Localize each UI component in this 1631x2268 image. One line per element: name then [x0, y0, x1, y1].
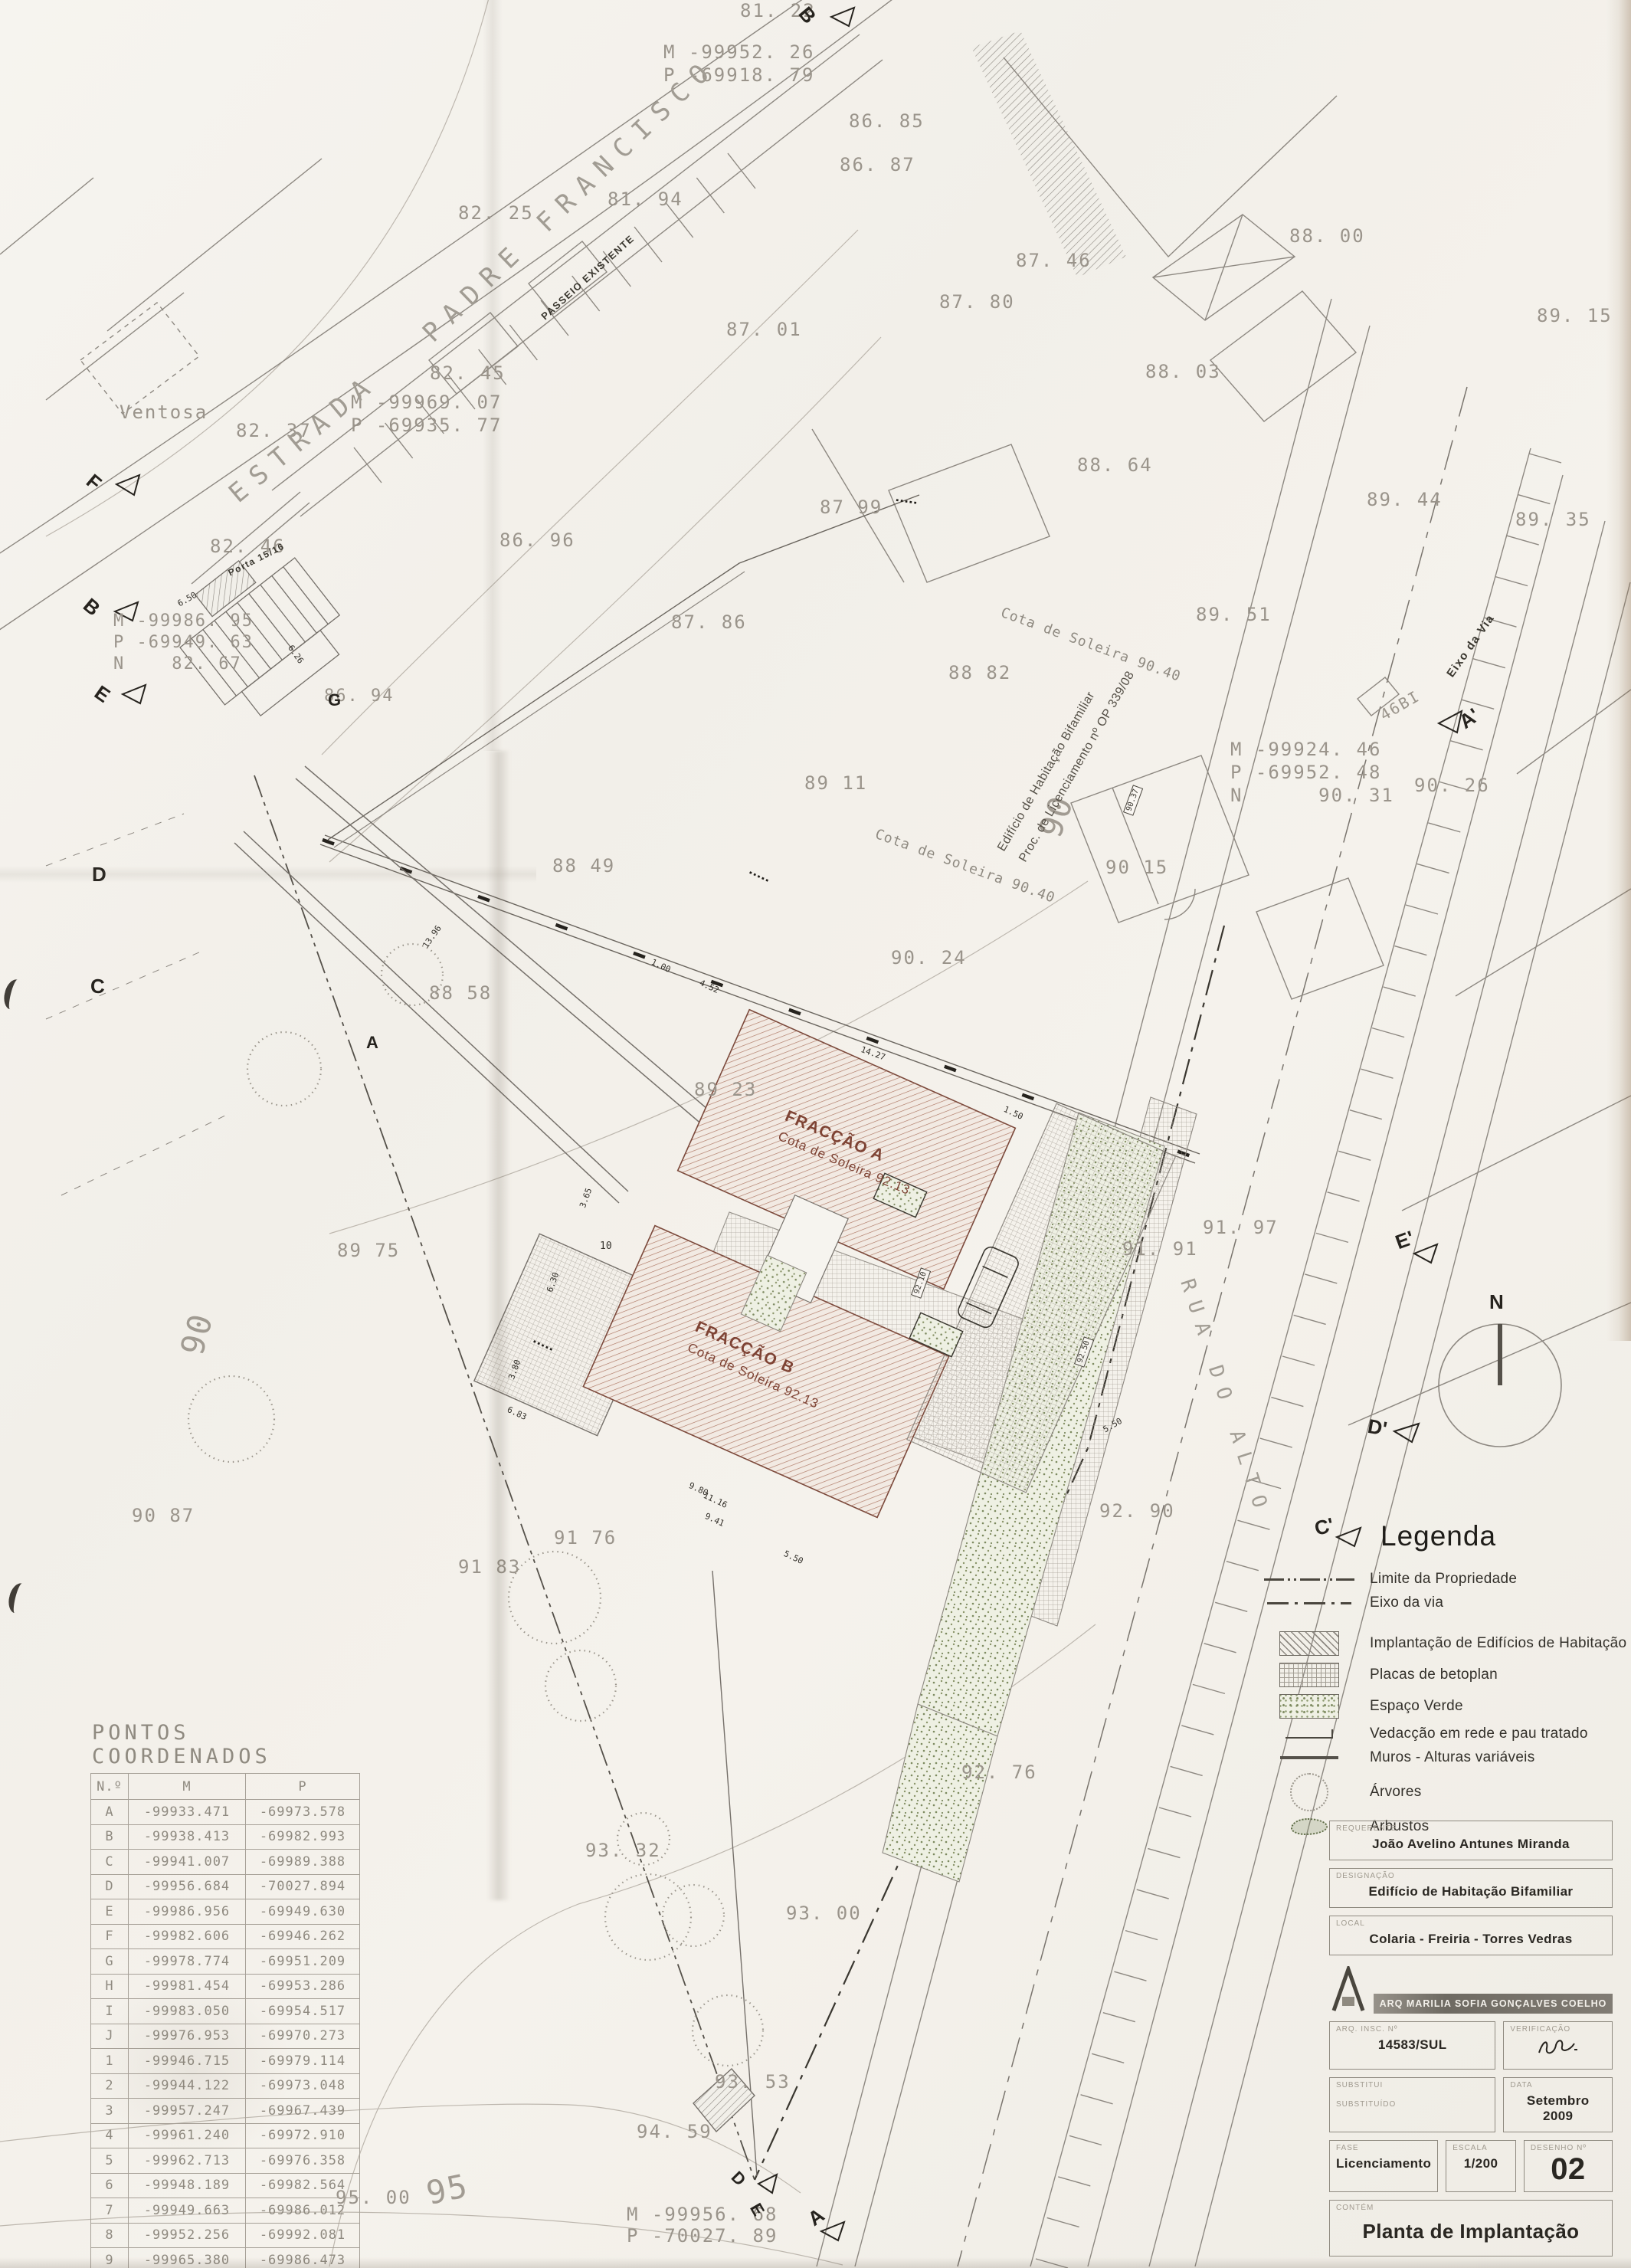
column-header: M — [129, 1774, 246, 1800]
table-cell: -69954.517 — [246, 1999, 360, 2024]
table-cell: -99981.454 — [129, 1974, 246, 1999]
field-verificacao: VERIFICAÇÃO — [1503, 2021, 1613, 2070]
plan-label: 88. 03 — [1145, 362, 1221, 381]
legend-item-label: Espaço Verde — [1370, 1698, 1463, 1715]
plan-label: E' — [1393, 1227, 1416, 1252]
table-cell: -69967.439 — [246, 2099, 360, 2124]
sym-limite-icon — [1264, 1578, 1354, 1581]
plan-label: 94. 59 — [637, 2122, 712, 2141]
plan-label: N — [1489, 1292, 1504, 1312]
plan-label: 90. 24 — [891, 949, 967, 967]
field-fase-label: FASE — [1336, 2144, 1431, 2152]
table-cell: C — [91, 1850, 129, 1875]
table-cell: -69973.578 — [246, 1800, 360, 1825]
table-cell: -99952.256 — [129, 2223, 246, 2248]
plan-label: 87. 80 — [939, 293, 1015, 311]
plan-label: P -69935. 77 — [351, 416, 502, 434]
plan-label: 11.16 — [702, 1491, 729, 1509]
table-row: 1-99946.715-69979.114 — [91, 2049, 360, 2074]
plan-label: 1.50 — [1002, 1105, 1024, 1121]
plan-label: 3.80 — [507, 1359, 522, 1381]
sym-fence-icon — [1264, 1729, 1354, 1739]
plan-label: 6.50 — [176, 591, 198, 608]
plan-label: 91 83 — [458, 1558, 521, 1576]
table-cell: -99933.471 — [129, 1800, 246, 1825]
table-cell: 4 — [91, 2123, 129, 2148]
plan-label: E — [91, 682, 113, 706]
table-cell: 7 — [91, 2198, 129, 2224]
field-verificacao-label: VERIFICAÇÃO — [1510, 2025, 1606, 2034]
table-cell: -69951.209 — [246, 1949, 360, 1975]
field-escala-label: ESCALA — [1453, 2144, 1509, 2152]
field-substitui-label: SUBSTITUI — [1336, 2081, 1489, 2089]
plan-label: M -99924. 46 — [1230, 740, 1381, 759]
table-cell: -69982.993 — [246, 1824, 360, 1850]
plan-label: Eixo da Via — [1445, 612, 1497, 679]
sym-stipple-icon — [1264, 1694, 1354, 1719]
plan-label: 88. 00 — [1289, 227, 1365, 245]
plan-label: 3.65 — [578, 1187, 593, 1209]
plan-label: 89 23 — [694, 1080, 757, 1099]
sym-muro — [1280, 1756, 1338, 1759]
table-cell: -69973.048 — [246, 2073, 360, 2099]
legend-item: Limite da Propriedade — [1264, 1571, 1627, 1588]
table-cell: D — [91, 1874, 129, 1899]
plan-label: 82. 45 — [430, 364, 506, 382]
plan-label: 93. 53 — [715, 2073, 791, 2091]
table-cell: -69986.012 — [246, 2198, 360, 2224]
plan-label: 88 49 — [552, 857, 615, 875]
sym-grid — [1279, 1663, 1339, 1687]
plan-label: 10 — [600, 1241, 612, 1251]
field-arq-insc: ARQ. INSC. Nº 14583/SUL — [1329, 2021, 1495, 2070]
table-row: 2-99944.122-69973.048 — [91, 2073, 360, 2099]
field-substituido-label: SUBSTITUÍDO — [1336, 2089, 1489, 2112]
table-cell: 1 — [91, 2049, 129, 2074]
table-cell: -69989.388 — [246, 1850, 360, 1875]
sym-grid-icon — [1264, 1663, 1354, 1687]
plan-label: A — [804, 2204, 827, 2229]
table-cell: 3 — [91, 2099, 129, 2124]
field-escala: ESCALA 1/200 — [1446, 2140, 1516, 2192]
table-row: A-99933.471-69973.578 — [91, 1800, 360, 1825]
table-row: G-99978.774-69951.209 — [91, 1949, 360, 1975]
plan-label: D — [92, 864, 106, 884]
title-block: REQUERENTE João Avelino Antunes Miranda … — [1329, 1821, 1613, 2264]
legend-item-label: Implantação de Edifícios de Habitação — [1370, 1635, 1626, 1652]
coordinates-table-block: PONTOS COORDENADOS N.ºMP A-99933.471-699… — [90, 1721, 360, 2268]
table-cell: -99976.953 — [129, 2024, 246, 2049]
plan-label: 46BI — [1377, 688, 1423, 723]
sym-stipple — [1279, 1694, 1339, 1719]
plan-label: RUA DO ALTO — [1177, 1277, 1273, 1520]
architect-logo-icon — [1329, 1966, 1367, 2014]
legend-item-label: Limite da Propriedade — [1370, 1571, 1517, 1588]
plan-label: 89. 51 — [1196, 605, 1272, 624]
table-cell: -69972.910 — [246, 2123, 360, 2148]
legend-item-label: Vedacção em rede e pau tratado — [1370, 1726, 1588, 1742]
plan-label: D' — [1366, 1416, 1388, 1439]
table-cell: -99962.713 — [129, 2148, 246, 2174]
table-cell: 5 — [91, 2148, 129, 2174]
field-substitui: SUBSTITUI SUBSTITUÍDO — [1329, 2077, 1495, 2132]
sym-muro-icon — [1264, 1756, 1354, 1759]
field-data: DATA Setembro 2009 — [1503, 2077, 1613, 2132]
plan-label: 92. 90 — [1099, 1502, 1175, 1520]
table-cell: 2 — [91, 2073, 129, 2099]
table-row: F-99982.606-69946.262 — [91, 1924, 360, 1949]
sym-eixo-icon — [1264, 1602, 1354, 1604]
field-arq-insc-value: 14583/SUL — [1336, 2034, 1489, 2059]
plan-label: B — [80, 595, 103, 619]
legend-item: Árvores — [1264, 1773, 1627, 1811]
plan-label: 5.50 — [782, 1549, 804, 1565]
table-cell: F — [91, 1924, 129, 1949]
plan-label: 87. 01 — [726, 320, 802, 339]
table-cell: B — [91, 1824, 129, 1850]
plan-label: P -70027. 89 — [627, 2227, 778, 2245]
plan-label: 9.41 — [703, 1512, 725, 1528]
table-cell: -69946.262 — [246, 1924, 360, 1949]
plan-label: P -69952. 48 — [1230, 763, 1381, 782]
table-cell: -99982.606 — [129, 1924, 246, 1949]
plan-label: 89 11 — [804, 774, 867, 792]
table-cell: -99946.715 — [129, 2049, 246, 2074]
field-desenho-label: DESENHO Nº — [1531, 2144, 1606, 2152]
plan-label: Ventosa — [120, 403, 208, 421]
plan-label: ▪▪▪▪▪ — [531, 1338, 555, 1355]
table-row: B-99938.413-69982.993 — [91, 1824, 360, 1850]
field-desenho-value: 02 — [1531, 2152, 1606, 2190]
sym-limite — [1264, 1578, 1354, 1581]
table-row: I-99983.050-69954.517 — [91, 1999, 360, 2024]
plan-label: 87. 46 — [1016, 251, 1092, 270]
field-local-value: Colaria - Freiria - Torres Vedras — [1336, 1928, 1606, 1953]
plan-label: 92. 76 — [961, 1763, 1037, 1781]
sym-hatch-icon — [1264, 1631, 1354, 1656]
sym-tree — [1290, 1773, 1328, 1811]
architect-logo-row: ARQ MARILIA SOFIA GONÇALVES COELHO — [1329, 1963, 1613, 2014]
field-designacao: DESIGNAÇÃO Edifício de Habitação Bifamil… — [1329, 1868, 1613, 1908]
table-cell: A — [91, 1800, 129, 1825]
table-cell: -99941.007 — [129, 1850, 246, 1875]
table-row: 7-99949.663-69986.012 — [91, 2198, 360, 2224]
table-row: E-99986.956-69949.630 — [91, 1899, 360, 1925]
plan-label: M -99952. 26 — [663, 43, 814, 61]
plan-label: 86. 85 — [849, 112, 925, 130]
table-row: H-99981.454-69953.286 — [91, 1974, 360, 1999]
sym-shrub — [1291, 1818, 1328, 1835]
plan-label: 92.50 — [1074, 1336, 1094, 1368]
field-fase-value: Licenciamento — [1336, 2152, 1431, 2178]
plan-label: 81. 94 — [608, 190, 683, 208]
plan-label: 93. 00 — [786, 1904, 862, 1922]
table-cell: -69953.286 — [246, 1974, 360, 1999]
plan-label: 89. 44 — [1367, 490, 1443, 509]
plan-label: 90. 26 — [1414, 776, 1490, 795]
plan-label: 91 76 — [554, 1529, 617, 1547]
plan-label: 90 15 — [1105, 858, 1168, 877]
plan-label: C — [90, 976, 105, 996]
table-cell: 6 — [91, 2173, 129, 2198]
table-cell: -99983.050 — [129, 1999, 246, 2024]
table-cell: -99978.774 — [129, 1949, 246, 1975]
plan-label: 90 87 — [132, 1506, 195, 1525]
field-data-label: DATA — [1510, 2081, 1606, 2089]
field-contem-label: CONTÉM — [1336, 2204, 1606, 2212]
verification-signature — [1510, 2034, 1606, 2067]
legend-item-label: Árvores — [1370, 1784, 1422, 1801]
coordinates-table: N.ºMP A-99933.471-69973.578B-99938.413-6… — [90, 1773, 360, 2268]
plan-label: P -69949. 63 — [113, 634, 254, 651]
field-requerente: REQUERENTE João Avelino Antunes Miranda — [1329, 1821, 1613, 1860]
plan-label: 4.52 — [698, 978, 720, 995]
sym-tree-icon — [1264, 1773, 1354, 1811]
plan-label: 90 — [176, 1309, 218, 1359]
legend-item-label: Muros - Alturas variáveis — [1370, 1749, 1535, 1766]
legend-item: Espaço Verde — [1264, 1694, 1627, 1719]
plan-label: 91. 97 — [1203, 1218, 1279, 1237]
plan-label: Cota de Soleira 90.40 — [999, 606, 1183, 684]
table-cell: E — [91, 1899, 129, 1925]
plan-label: F — [83, 470, 105, 493]
coordinates-table-title: PONTOS COORDENADOS — [92, 1721, 360, 1768]
plan-label: ▪▪▪▪▪ — [747, 869, 771, 886]
plan-label: M -99986. 95 — [113, 613, 254, 630]
table-cell: -99944.122 — [129, 2073, 246, 2099]
table-cell: -99965.380 — [129, 2248, 246, 2268]
plan-label: 13.96 — [421, 924, 443, 949]
table-cell: 8 — [91, 2223, 129, 2248]
table-cell: -70027.894 — [246, 1874, 360, 1899]
table-row: 9-99965.380-69986.473 — [91, 2248, 360, 2268]
plan-label: 6.30 — [545, 1271, 560, 1293]
plan-label: 82. 25 — [458, 204, 534, 222]
plan-label: 89. 35 — [1515, 510, 1591, 529]
plan-label: 88 58 — [429, 984, 492, 1002]
plan-label: G — [328, 692, 341, 709]
field-designacao-value: Edifício de Habitação Bifamiliar — [1336, 1880, 1606, 1906]
column-header: P — [246, 1774, 360, 1800]
table-cell: G — [91, 1949, 129, 1975]
plan-label: 88. 64 — [1077, 456, 1153, 474]
plan-label: 88 82 — [948, 664, 1011, 682]
table-cell: -99986.956 — [129, 1899, 246, 1925]
table-cell: -69986.473 — [246, 2248, 360, 2268]
scanned-site-plan-page: 81. 22M -99952. 26P -69918. 7986. 8586. … — [0, 0, 1631, 2268]
plan-label: 89. 15 — [1537, 306, 1613, 325]
table-cell: J — [91, 2024, 129, 2049]
table-cell: I — [91, 1999, 129, 2024]
plan-label: PASSEIO EXISTENTE — [539, 233, 636, 322]
sym-fence — [1285, 1729, 1333, 1739]
plan-label: 86. 87 — [840, 156, 915, 174]
legend: Legenda Limite da PropriedadeEixo da via… — [1264, 1520, 1627, 1842]
plan-label: 89 75 — [337, 1241, 400, 1260]
table-cell: 9 — [91, 2248, 129, 2268]
legend-title: Legenda — [1380, 1520, 1627, 1552]
table-cell: -69970.273 — [246, 2024, 360, 2049]
table-cell: -69949.630 — [246, 1899, 360, 1925]
table-cell: -69976.358 — [246, 2148, 360, 2174]
plan-label: A' — [1456, 705, 1482, 733]
plan-label: 6.83 — [506, 1405, 528, 1421]
table-row: 5-99962.713-69976.358 — [91, 2148, 360, 2174]
coordinates-table-header: N.ºMP — [91, 1774, 360, 1800]
field-data-value: Setembro 2009 — [1510, 2089, 1606, 2130]
field-escala-value: 1/200 — [1453, 2152, 1509, 2178]
legend-item-label: Eixo da via — [1370, 1594, 1443, 1611]
plan-label: N 90. 31 — [1230, 786, 1394, 805]
field-desenho: DESENHO Nº 02 — [1524, 2140, 1613, 2192]
table-cell: -69979.114 — [246, 2049, 360, 2074]
plan-label: 87 99 — [820, 498, 883, 516]
table-row: 6-99948.189-69982.564 — [91, 2173, 360, 2198]
legend-item: Placas de betoplan — [1264, 1663, 1627, 1687]
plan-label: 14.27 — [860, 1045, 886, 1062]
table-cell: -99957.247 — [129, 2099, 246, 2124]
table-cell: -99948.189 — [129, 2173, 246, 2198]
plan-label: 87. 86 — [671, 613, 747, 631]
legend-item: Eixo da via — [1264, 1594, 1627, 1611]
sym-hatch — [1279, 1631, 1339, 1656]
table-cell: H — [91, 1974, 129, 1999]
legend-item-label: Placas de betoplan — [1370, 1667, 1498, 1683]
signature-icon — [1536, 2037, 1580, 2057]
field-fase: FASE Licenciamento — [1329, 2140, 1438, 2192]
table-cell: -99961.240 — [129, 2123, 246, 2148]
plan-label: 91. 91 — [1122, 1240, 1198, 1258]
legend-item: Muros - Alturas variáveis — [1264, 1749, 1627, 1766]
plan-label: 86. 96 — [499, 531, 575, 549]
field-designacao-label: DESIGNAÇÃO — [1336, 1872, 1606, 1880]
plan-label: A — [366, 1034, 378, 1051]
sym-eixo — [1267, 1602, 1351, 1604]
field-local-label: LOCAL — [1336, 1919, 1606, 1928]
drawing-title: Planta de Implantação — [1336, 2212, 1606, 2254]
table-row: D-99956.684-70027.894 — [91, 1874, 360, 1899]
table-row: C-99941.007-69989.388 — [91, 1850, 360, 1875]
field-local: LOCAL Colaria - Freiria - Torres Vedras — [1329, 1916, 1613, 1955]
plan-label: 93. 32 — [585, 1841, 661, 1860]
field-requerente-label: REQUERENTE — [1336, 1824, 1606, 1833]
field-arq-insc-label: ARQ. INSC. Nº — [1336, 2025, 1489, 2034]
legend-item: Implantação de Edifícios de Habitação — [1264, 1631, 1627, 1656]
plan-label: 95 — [424, 2170, 471, 2210]
table-row: 4-99961.240-69972.910 — [91, 2123, 360, 2148]
plan-label: ▪▪▪▪▪ — [895, 497, 919, 508]
field-contem: CONTÉM Planta de Implantação — [1329, 2200, 1613, 2257]
plan-label: 1.00 — [650, 958, 672, 974]
plan-label: Proc. de Licenciamento nº OP 339/08 — [1017, 670, 1137, 864]
architect-name-band: ARQ MARILIA SOFIA GONÇALVES COELHO — [1374, 1994, 1613, 2014]
table-cell: -99956.684 — [129, 1874, 246, 1899]
plan-label: N 82. 67 — [113, 656, 242, 673]
table-cell: -99949.663 — [129, 2198, 246, 2224]
plan-label: 5.50 — [1102, 1417, 1123, 1434]
table-cell: -99938.413 — [129, 1824, 246, 1850]
table-row: 3-99957.247-69967.439 — [91, 2099, 360, 2124]
column-header: N.º — [91, 1774, 129, 1800]
plan-label: D — [728, 2168, 748, 2189]
table-row: 8-99952.256-69992.081 — [91, 2223, 360, 2248]
plan-label: 90.37 — [1123, 785, 1143, 816]
table-row: J-99976.953-69970.273 — [91, 2024, 360, 2049]
table-cell: -69992.081 — [246, 2223, 360, 2248]
table-cell: -69982.564 — [246, 2173, 360, 2198]
field-requerente-value: João Avelino Antunes Miranda — [1336, 1833, 1606, 1858]
legend-item: Vedacção em rede e pau tratado — [1264, 1726, 1627, 1742]
plan-label: 6.26 — [287, 644, 305, 665]
plan-label: 92.10 — [911, 1267, 931, 1299]
